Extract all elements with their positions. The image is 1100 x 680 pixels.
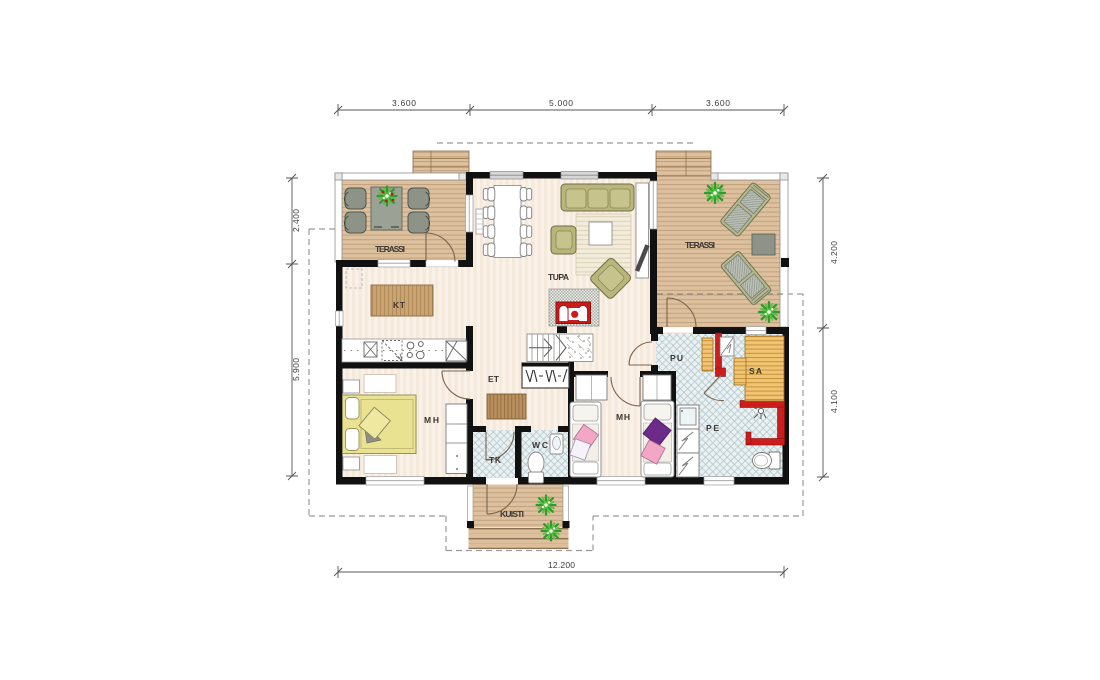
- svg-text:KUISTI: KUISTI: [500, 509, 524, 519]
- svg-text:SA: SA: [749, 366, 762, 376]
- svg-text:TUPA: TUPA: [548, 272, 569, 282]
- svg-text:3.600: 3.600: [706, 98, 730, 108]
- svg-text:4.100: 4.100: [829, 390, 839, 413]
- svg-text:PE: PE: [706, 423, 719, 433]
- svg-text:TERASSI: TERASSI: [685, 240, 715, 250]
- svg-text:2.400: 2.400: [291, 209, 301, 232]
- svg-text:ET: ET: [488, 374, 500, 384]
- svg-text:4.200: 4.200: [829, 241, 839, 264]
- svg-text:KT: KT: [393, 300, 406, 310]
- svg-text:3.600: 3.600: [392, 98, 416, 108]
- svg-text:5.900: 5.900: [291, 358, 301, 381]
- svg-text:5.000: 5.000: [549, 98, 573, 108]
- svg-text:TERASSI: TERASSI: [375, 244, 405, 254]
- svg-text:WC: WC: [532, 440, 548, 450]
- svg-text:12.200: 12.200: [548, 560, 575, 570]
- svg-text:MH: MH: [616, 412, 630, 422]
- svg-text:PU: PU: [670, 353, 683, 363]
- svg-text:TK: TK: [489, 455, 502, 465]
